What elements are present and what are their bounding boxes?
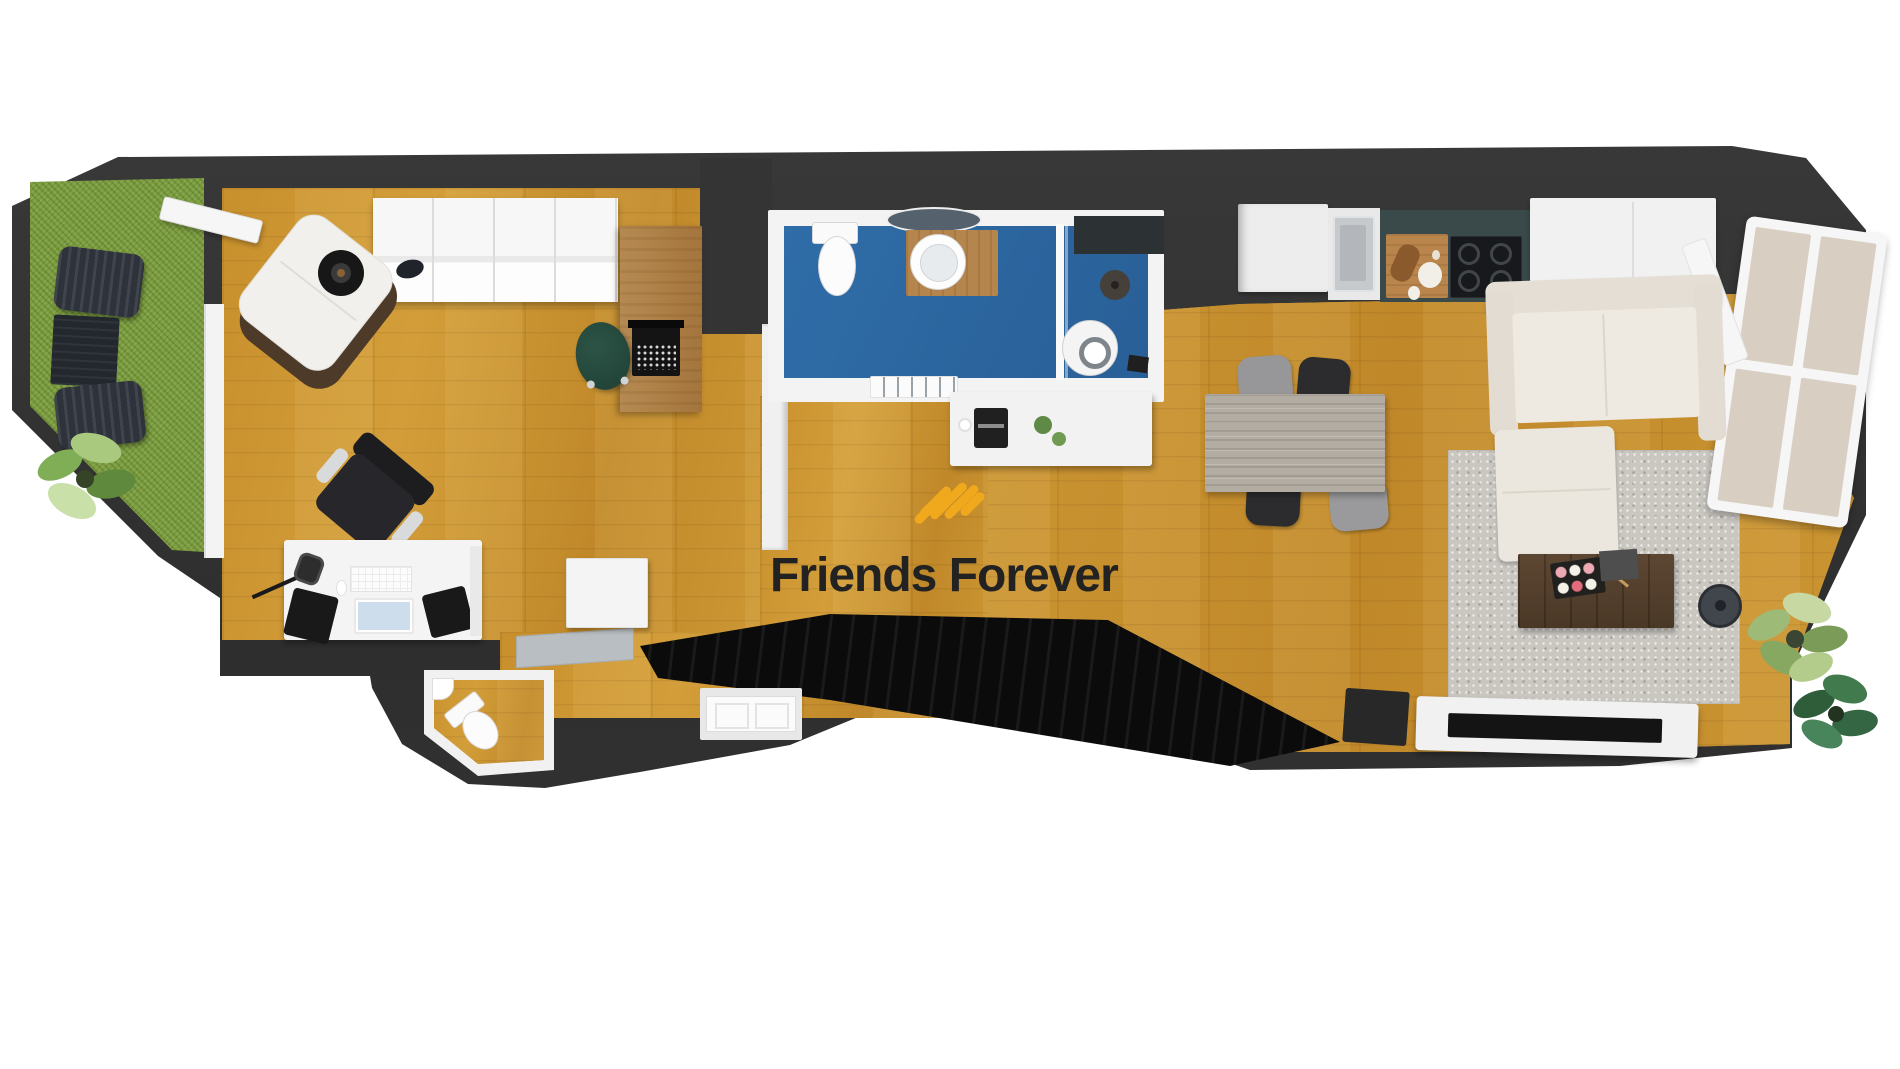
studio-desk	[284, 540, 482, 640]
plant-pot	[76, 470, 94, 488]
round-basin	[1062, 320, 1118, 376]
desk-shelf	[470, 546, 482, 636]
outdoor-side-table	[50, 314, 120, 387]
desk-speaker	[283, 587, 339, 645]
l-shaped-sofa	[1485, 274, 1735, 570]
small-plant	[1034, 416, 1052, 434]
floor-plan-canvas: Friends Forever	[0, 0, 1900, 1069]
front-door	[700, 688, 802, 740]
wooden-writing-desk	[620, 226, 702, 412]
sofa-chaise	[1494, 426, 1619, 562]
coffee-machine	[974, 408, 1008, 448]
guest-wc	[424, 664, 564, 776]
typewriter	[632, 324, 680, 376]
monstera-plant	[1792, 676, 1884, 756]
brand-wordmark: Friends Forever	[770, 548, 1150, 603]
dining-table	[1205, 394, 1385, 492]
brand-logo-icon	[918, 474, 982, 534]
bedroom-bathroom-wall	[700, 158, 772, 334]
balcony-door-frame	[204, 304, 224, 558]
shower-drain	[1100, 270, 1130, 300]
window-pane	[1737, 227, 1811, 366]
window-pane	[1783, 378, 1857, 517]
coffee-table-box	[1599, 549, 1639, 582]
shower-wall-panel	[1074, 216, 1164, 254]
burner-ring	[1458, 270, 1480, 292]
sofa-arm	[1693, 284, 1726, 441]
plant-pot	[1786, 630, 1804, 648]
toilet-bowl	[818, 236, 856, 296]
burner-ring	[1490, 243, 1512, 265]
vessel-sink	[910, 234, 966, 290]
sofa-seat-cushions	[1512, 307, 1700, 423]
keyboard	[350, 566, 412, 592]
window-pane	[1803, 236, 1877, 375]
robot-vacuum	[1698, 584, 1742, 628]
fridge-cabinet	[1238, 204, 1328, 292]
tablet-screen	[354, 598, 414, 634]
round-side-table-with-lamp	[318, 250, 364, 296]
sushi-platter	[1550, 557, 1607, 600]
stainless-sink	[1333, 216, 1375, 292]
front-door-leaf	[706, 696, 796, 732]
coffee-bar-island	[950, 392, 1152, 466]
studio-microphone	[292, 550, 327, 587]
bathroom	[768, 210, 1164, 402]
speaker-box	[1342, 688, 1410, 746]
sun-lounger	[52, 245, 145, 319]
coffee-cup	[958, 418, 972, 432]
balcony-plant	[30, 430, 140, 530]
towel-radiator	[870, 376, 958, 398]
small-plant	[1052, 432, 1066, 446]
kitchen-white-cabinet	[1530, 198, 1716, 282]
plant-pot	[1828, 706, 1844, 722]
cutting-board-with-food	[1386, 234, 1448, 298]
burner-ring	[1458, 243, 1480, 265]
mouse	[336, 580, 347, 596]
desk-speaker	[421, 585, 474, 638]
hall-cabinet	[566, 558, 648, 628]
black-faucet	[1127, 355, 1149, 374]
plant-leaf	[1798, 622, 1850, 656]
